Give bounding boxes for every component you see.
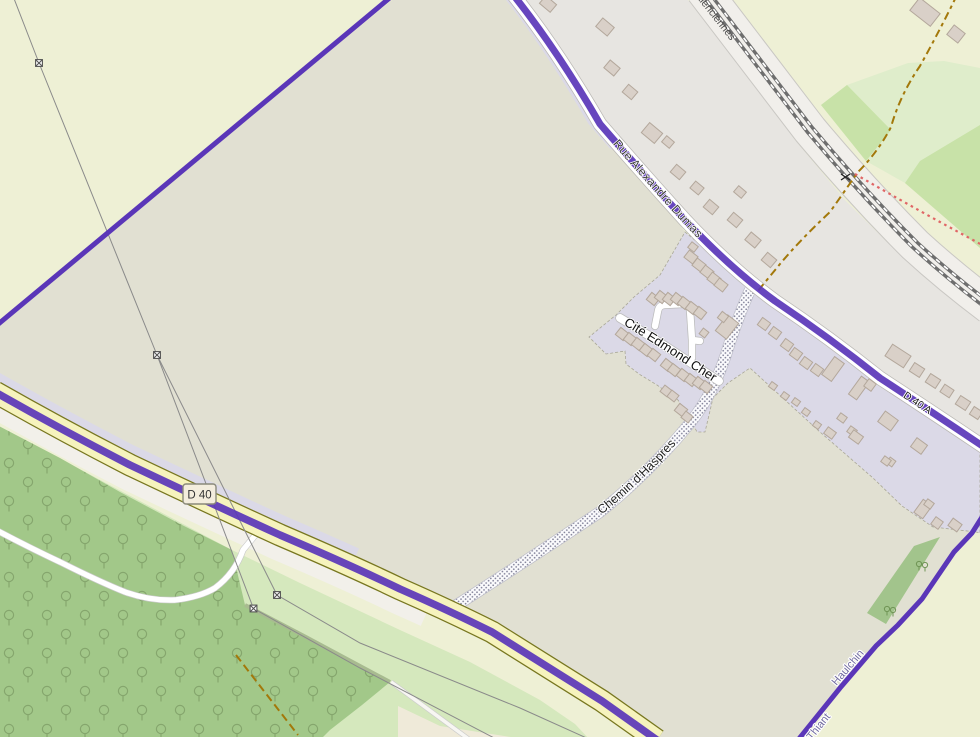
svg-text:D 40: D 40 xyxy=(187,490,211,502)
